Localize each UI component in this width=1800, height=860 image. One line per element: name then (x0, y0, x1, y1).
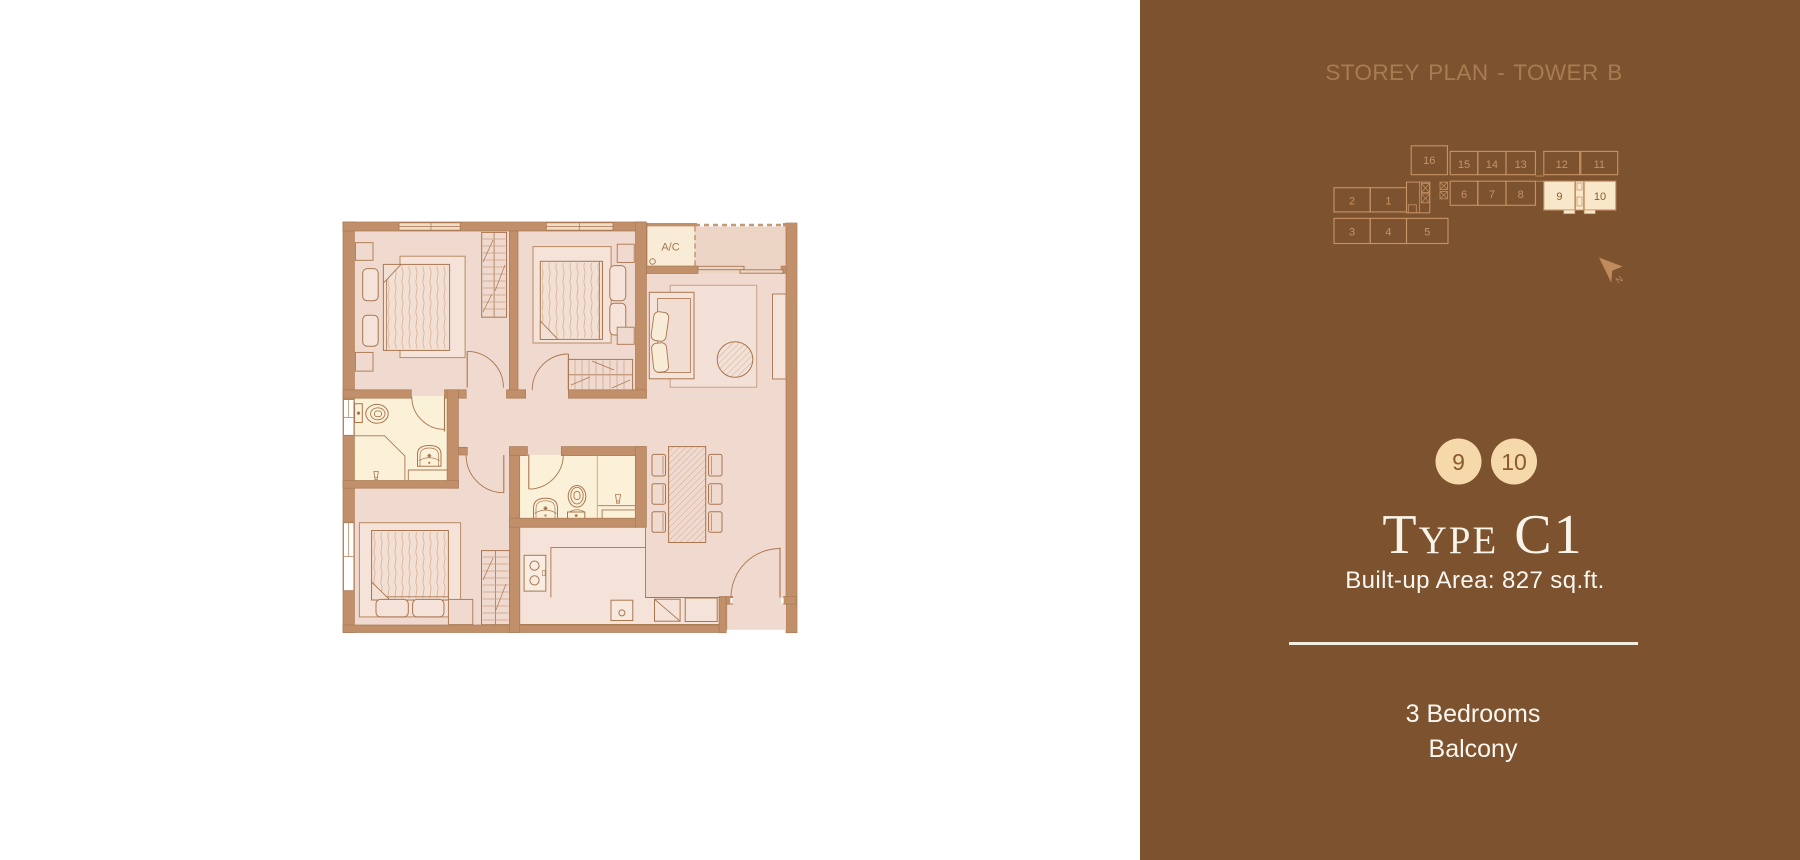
svg-text:9: 9 (1452, 449, 1465, 475)
svg-text:10: 10 (1501, 449, 1527, 475)
svg-text:A/C: A/C (661, 242, 679, 254)
